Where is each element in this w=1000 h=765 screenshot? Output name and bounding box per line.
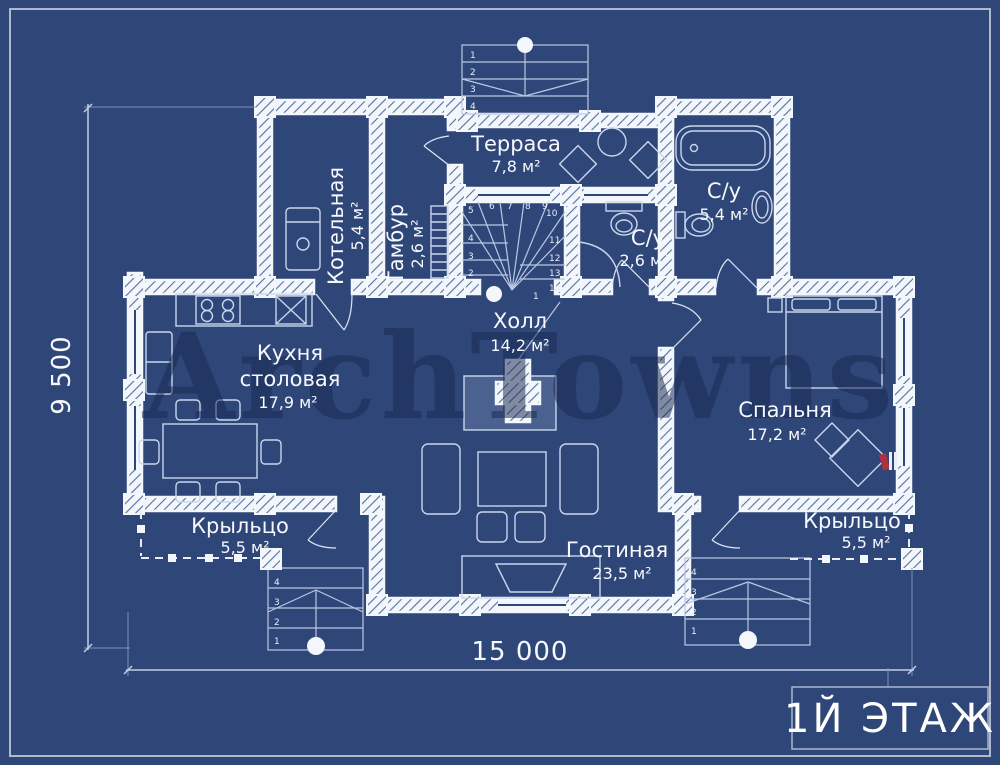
step-number: 2 (468, 269, 474, 279)
shelf-strip (894, 452, 897, 470)
step-number: 13 (549, 269, 560, 279)
sofa (560, 444, 598, 514)
step-number: 3 (470, 85, 476, 95)
radiator (431, 206, 448, 278)
step-number: 11 (549, 236, 560, 246)
room-label-porch-right: Крыльцо 5,5 м² (803, 509, 901, 552)
toilet-tank (676, 212, 685, 238)
step-number: 4 (470, 102, 476, 112)
step-number: 14 (549, 284, 561, 294)
room-area: 17,2 м² (747, 425, 806, 444)
chair (560, 146, 597, 183)
room-name: Спальня (738, 398, 831, 422)
step-number: 3 (468, 252, 474, 262)
step-number: 2 (691, 608, 697, 618)
furniture-boiler (286, 208, 320, 270)
coffee-table (478, 452, 546, 506)
room-label-boiler: Котельная 5,4 м² (324, 167, 367, 285)
room-name: Котельная (324, 167, 348, 285)
bath-large-door (716, 259, 757, 288)
bedroom-porch-door (712, 510, 740, 548)
entry-steps: 1 2 3 4 (462, 37, 588, 114)
room-area: 2,6 м² (408, 219, 427, 268)
pouf (477, 512, 507, 542)
room-area: 5,5 м² (841, 533, 890, 552)
room-name: Терраса (470, 132, 561, 156)
toilet-tank (606, 202, 642, 211)
blueprint-canvas: 1 2 3 4 1 2 3 4 5 6 7 8 9 10 11 12 13 14 (0, 0, 1000, 765)
room-label-hall: Холл 14,2 м² (490, 309, 549, 355)
room-name: С/у (707, 179, 741, 203)
room-area: 5,5 м² (220, 538, 269, 557)
step-number: 3 (691, 588, 697, 598)
room-label-living: Гостиная 23,5 м² (566, 538, 668, 583)
dimension-width-label: 15 000 (472, 637, 569, 667)
dimension-horizontal: 15 000 (124, 568, 916, 676)
tambour-entry-door (424, 136, 450, 166)
room-label-terrace: Терраса 7,8 м² (470, 132, 561, 176)
room-area: 5,4 м² (348, 201, 367, 250)
floor-title: 1Й ЭТАЖ (784, 694, 996, 742)
room-area: 2,6 м² (619, 251, 668, 270)
step-number: 5 (468, 206, 474, 216)
room-name: Гостиная (566, 538, 668, 562)
porch-right-steps: 4 3 2 1 (685, 558, 810, 649)
title-block: 1Й ЭТАЖ (784, 668, 996, 749)
step-number: 6 (489, 202, 495, 212)
step-number: 2 (470, 68, 476, 78)
step-number: 10 (546, 209, 558, 219)
room-name: Тамбур (384, 204, 408, 285)
dimension-height-label: 9 500 (47, 335, 77, 414)
boiler-unit (286, 208, 320, 270)
step-number: 8 (525, 202, 531, 212)
red-accent-item (879, 453, 890, 470)
step-number: 12 (549, 254, 560, 264)
room-area: 7,8 м² (491, 157, 540, 176)
room-area: 5,4 м² (699, 205, 748, 224)
sofa (422, 444, 460, 514)
step-number: 1 (470, 51, 476, 61)
furniture-tambour (431, 206, 448, 278)
step-number: 1 (274, 637, 280, 647)
pouf (515, 512, 545, 542)
room-name: С/у (631, 226, 665, 250)
room-label-tambour: Тамбур 2,6 м² (384, 204, 427, 285)
step-number: 4 (691, 568, 697, 578)
room-name: Крыльцо (191, 514, 289, 538)
kitchen-porch-door (308, 510, 336, 548)
step-number: 1 (691, 627, 697, 637)
room-area: 17,9 м² (258, 393, 317, 412)
room-area: 23,5 м² (592, 564, 651, 583)
shelf-strip (889, 452, 892, 470)
room-area: 14,2 м² (490, 336, 549, 355)
step-number: 7 (507, 202, 513, 212)
step-number: 2 (274, 618, 280, 628)
step-number: 3 (274, 598, 280, 608)
round-table (598, 128, 626, 156)
furniture-terrace (560, 128, 667, 182)
room-name: столовая (240, 367, 341, 391)
room-name: Кухня (257, 341, 323, 365)
step-number: 1 (533, 292, 539, 302)
step-number: 4 (274, 578, 280, 588)
room-label-bathroom-large: С/у 5,4 м² (699, 179, 748, 224)
room-name: Холл (493, 309, 547, 333)
floor-plan-svg: 1 2 3 4 1 2 3 4 5 6 7 8 9 10 11 12 13 14 (0, 0, 1000, 765)
room-name: Крыльцо (803, 509, 901, 533)
room-label-bathroom-small: С/у 2,6 м² (619, 226, 668, 270)
porch-left-steps: 4 3 2 1 (268, 568, 363, 655)
step-number: 4 (468, 234, 474, 244)
fireplace (496, 564, 566, 592)
